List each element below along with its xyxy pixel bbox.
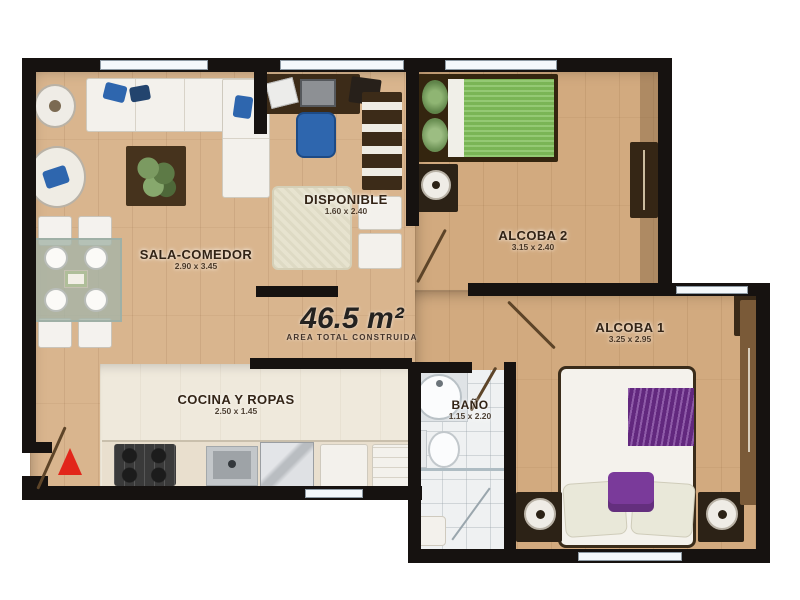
headboard-plant — [422, 118, 448, 152]
wall-segment — [250, 358, 412, 369]
room-label-sala-comedor: SALA-COMEDOR 2.90 x 3.45 — [140, 247, 252, 271]
wall-segment — [254, 58, 267, 134]
dining-chair — [38, 318, 72, 348]
wall-segment — [36, 486, 422, 500]
wall-segment — [504, 362, 516, 558]
wall-segment — [468, 283, 668, 296]
speaker — [524, 498, 556, 530]
plate — [44, 288, 68, 312]
wall-segment — [756, 283, 770, 563]
closet-handle — [748, 348, 750, 452]
laptop — [300, 79, 336, 107]
sofa-pillow — [233, 95, 254, 119]
room-label-bano: BAÑO 1.15 x 2.20 — [449, 398, 492, 421]
shower-glass — [414, 468, 506, 471]
room-label-cocina: COCINA Y ROPAS 2.50 x 1.45 — [177, 392, 294, 416]
sink-faucet — [228, 460, 236, 468]
room-label-alcoba-1: ALCOBA 1 3.25 x 2.95 — [595, 320, 664, 344]
plate — [44, 246, 68, 270]
dining-chair — [78, 318, 112, 348]
table-centerpiece — [64, 270, 88, 288]
window — [280, 60, 404, 70]
speaker — [421, 170, 451, 200]
toilet-bowl — [428, 431, 460, 468]
bed-duvet-green — [464, 79, 554, 157]
wall-segment — [22, 58, 36, 450]
window — [445, 60, 557, 70]
side-table — [34, 84, 76, 128]
washer — [320, 444, 368, 488]
faucet — [436, 380, 443, 387]
window — [578, 552, 682, 561]
entry-arrow-icon — [58, 448, 82, 475]
wardrobe-handle — [643, 150, 645, 210]
wall-segment — [408, 362, 472, 373]
wall-segment — [658, 58, 672, 296]
wall-segment — [408, 362, 421, 563]
purple-cushion — [608, 472, 654, 512]
wall-segment — [406, 58, 419, 226]
room-label-disponible: DISPONIBLE 1.60 x 2.40 — [304, 192, 387, 216]
plate — [84, 288, 108, 312]
office-chair — [296, 112, 336, 158]
bed-sheet — [448, 79, 464, 157]
wall-segment — [22, 442, 52, 453]
headboard-plant — [422, 80, 448, 114]
window — [676, 286, 748, 294]
fridge — [260, 442, 314, 488]
room-label-alcoba-2: ALCOBA 2 3.15 x 2.40 — [498, 228, 567, 252]
total-area-label: 46.5 m² AREA TOTAL CONSTRUIDA — [286, 302, 417, 342]
purple-throw — [628, 388, 694, 446]
speaker — [706, 498, 738, 530]
plant — [130, 150, 182, 202]
window — [305, 489, 363, 498]
window — [100, 60, 208, 70]
wall-segment — [256, 286, 338, 297]
floor-plan: SALA-COMEDOR 2.90 x 3.45 DISPONIBLE 1.60… — [0, 0, 800, 600]
stove — [114, 444, 176, 486]
storage-box — [358, 233, 402, 269]
plate — [84, 246, 108, 270]
bookshelf — [362, 92, 402, 190]
